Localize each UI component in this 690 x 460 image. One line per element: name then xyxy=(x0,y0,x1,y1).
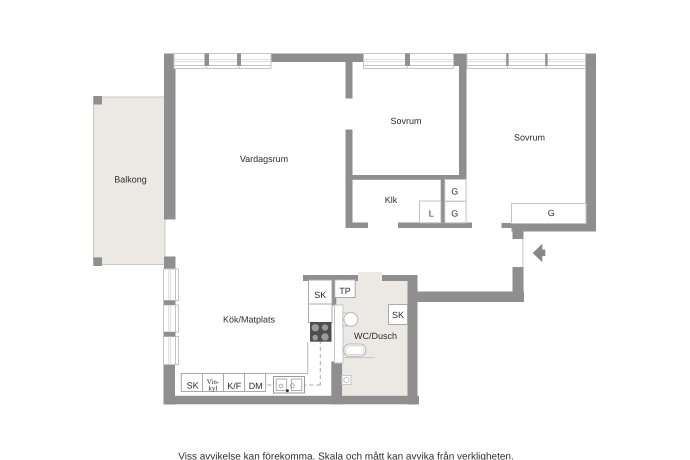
svg-text:SK: SK xyxy=(314,290,326,300)
svg-text:SK: SK xyxy=(187,381,199,391)
svg-text:TP: TP xyxy=(339,286,351,296)
svg-text:G: G xyxy=(451,187,458,197)
svg-text:WC/Dusch: WC/Dusch xyxy=(354,331,397,341)
svg-text:DM: DM xyxy=(249,381,263,391)
svg-text:L: L xyxy=(429,208,434,218)
svg-text:Sovrum: Sovrum xyxy=(514,133,545,143)
svg-text:Kök/Matplats: Kök/Matplats xyxy=(223,315,276,325)
svg-text:SK: SK xyxy=(392,310,404,320)
svg-text:G: G xyxy=(451,208,458,218)
svg-text:Klk: Klk xyxy=(385,195,398,205)
svg-text:kyl: kyl xyxy=(209,385,218,393)
svg-text:G: G xyxy=(548,208,555,218)
svg-text:Viss avvikelse kan förekomma.: Viss avvikelse kan förekomma. Skala och … xyxy=(178,451,514,460)
svg-text:Sovrum: Sovrum xyxy=(390,116,421,126)
svg-text:Balkong: Balkong xyxy=(114,175,147,185)
svg-text:Vardagsrum: Vardagsrum xyxy=(240,154,288,164)
svg-text:K/F: K/F xyxy=(227,381,242,391)
